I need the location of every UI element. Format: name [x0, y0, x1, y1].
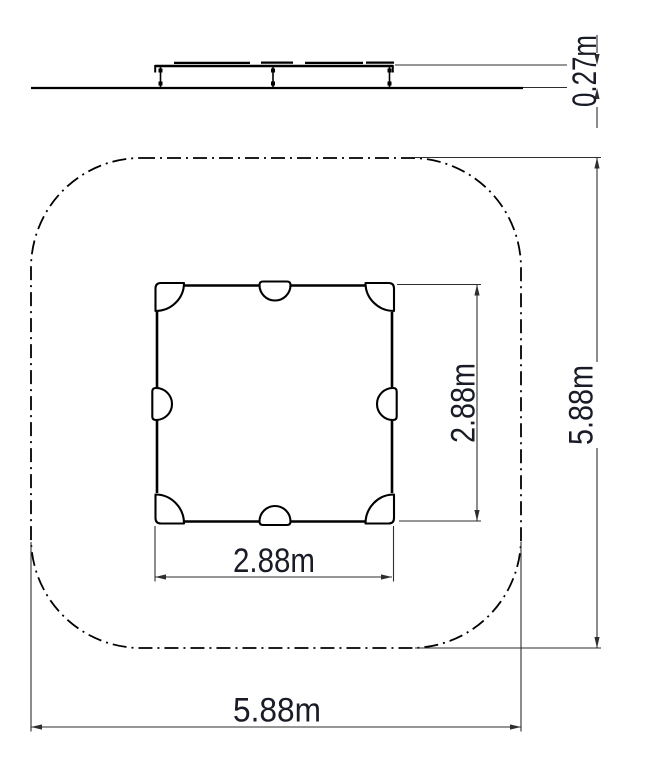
sandbox-seats [152, 282, 396, 526]
seat-mid-right [377, 388, 397, 420]
dimension-arrow [594, 158, 599, 169]
dimension-arrow [594, 637, 599, 648]
dimension-label: 2.88m [233, 542, 315, 580]
dimension-arrow [31, 724, 42, 729]
dimension-label: 5.88m [563, 365, 601, 445]
sandbox-frame-edges [157, 286, 392, 522]
seat-corner-top-right [366, 283, 395, 311]
dimension-label: 0.27m [566, 35, 604, 107]
seat-mid-top [260, 282, 291, 301]
dimension-sandbox-depth: 2.88m [397, 285, 483, 522]
dimension-arrow [155, 574, 166, 579]
dimension-safety-zone-depth: 5.88m [415, 158, 601, 649]
seat-mid-bottom [260, 506, 291, 525]
post-feet [159, 69, 392, 86]
seat-corner-bottom-left [156, 495, 185, 524]
dimension-arrow [474, 285, 479, 296]
dimension-arrow [510, 724, 521, 729]
dimension-sandbox-width: 2.88m [155, 526, 394, 582]
technical-drawing-page: 0.27m 2.88m [0, 0, 661, 768]
sandbox-technical-drawing: 0.27m 2.88m [0, 0, 661, 768]
dimension-frame-height: 0.27m [395, 35, 604, 128]
dimension-arrow [381, 574, 392, 579]
seat-mid-left [152, 388, 172, 420]
dimension-label: 5.88m [233, 692, 321, 730]
seat-corner-top-left [156, 283, 185, 311]
seat-corner-bottom-right [366, 495, 395, 524]
dimension-arrow [474, 510, 479, 521]
dimension-label: 2.88m [445, 363, 483, 443]
elevation-view [31, 63, 523, 88]
